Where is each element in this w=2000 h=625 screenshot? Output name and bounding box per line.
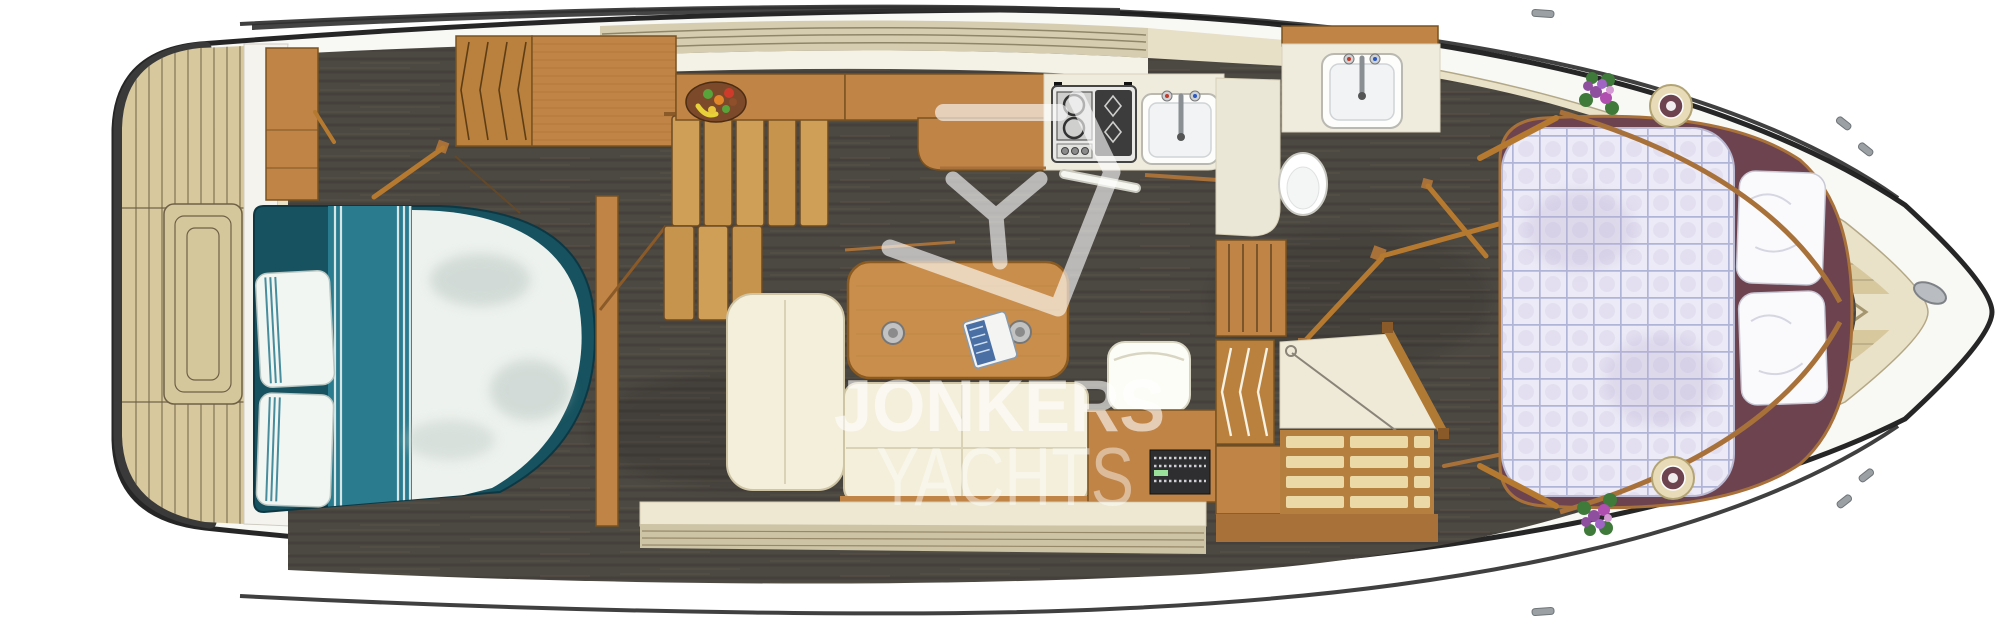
salon-sill [640,502,1206,526]
vanity-sink [1322,54,1402,128]
yacht-floorplan: JONKERS YACHTS [0,0,2000,625]
galley-counter-wood [845,74,1046,120]
toilet [1279,153,1327,215]
teak-grate [1280,430,1434,514]
aft-cabin [254,36,676,526]
vberth-mattress [1502,128,1734,496]
head-wall [1216,78,1280,236]
vanity-wood-strip [1282,26,1438,46]
slat-cabinet [1216,240,1286,336]
fwd-pillow-2 [1738,291,1828,406]
stairs-upper-flight [672,116,828,226]
sofa-bench [844,383,1088,502]
salon-table [848,262,1068,378]
galley-peninsula [918,118,1046,170]
aft-cabinet [266,48,318,200]
louver-doors [1216,340,1274,444]
louver-wardrobe [456,36,532,146]
radio-stereo [1150,450,1210,494]
deck-hatch-bottom [1652,457,1694,499]
fruit-bowl [686,82,746,122]
stern-steps [164,204,242,404]
floorplan-drawing: JONKERS YACHTS [0,0,2000,625]
deck-hatch-top [1650,85,1692,127]
aft-tall-cabinet [532,36,676,146]
aft-bulkhead [596,196,618,526]
stove [1052,82,1136,162]
galley-sink [1142,91,1218,164]
cup-holder-1 [882,322,904,344]
aft-pillow-1 [255,270,335,388]
armchair [1108,342,1190,412]
aft-pillow-2 [256,393,334,508]
base-strip [1216,514,1438,542]
radio-cabinet [1088,410,1216,502]
cabinet-base [1216,446,1286,514]
